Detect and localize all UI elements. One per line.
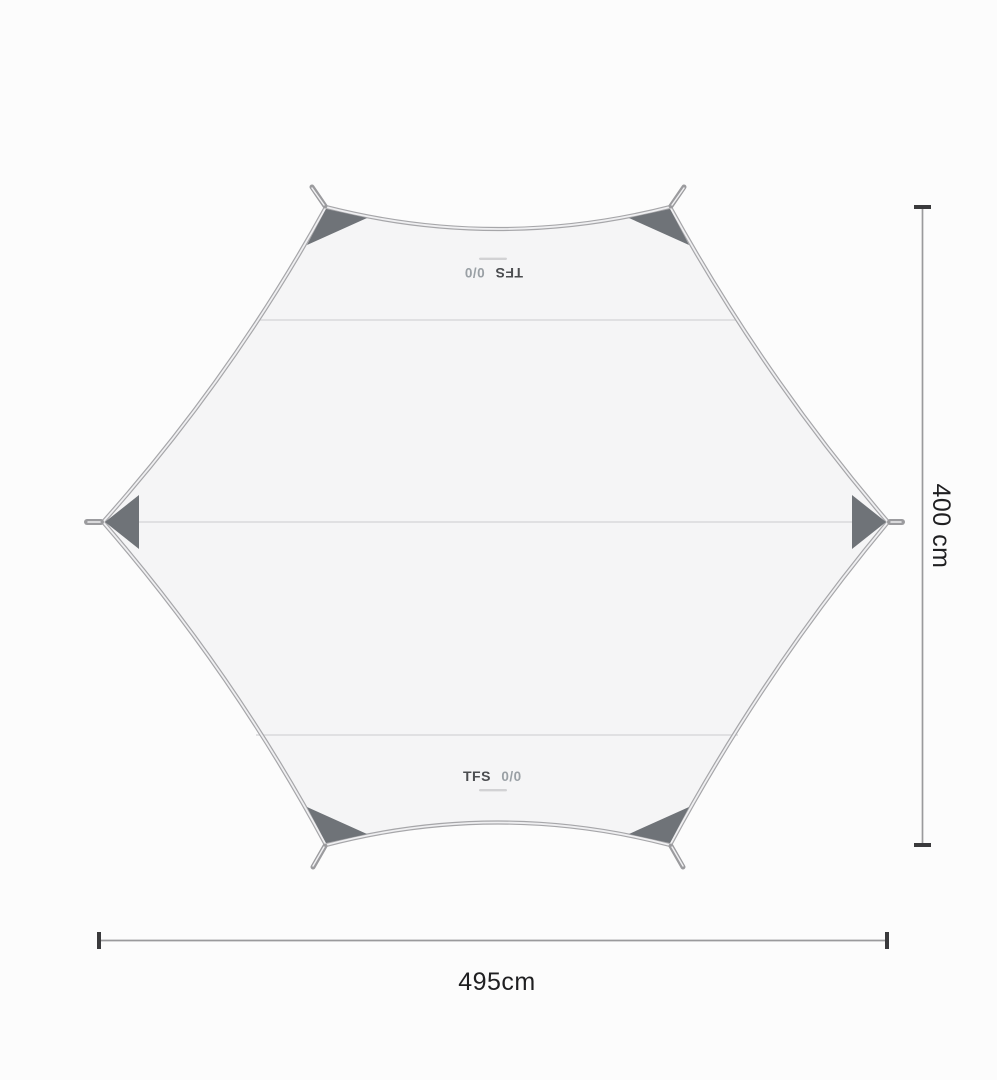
- loop-top-left-highlight: [312, 188, 324, 205]
- dimension-height: 400 cm: [914, 207, 955, 845]
- logo-top-brand: TFS: [495, 265, 523, 281]
- loop-bottom-left-highlight: [313, 847, 324, 866]
- product-diagram: TFS 0/0 TFS 0/0 400 cm 495cm: [0, 0, 997, 1080]
- tarp-fabric: [103, 207, 888, 845]
- logo-top-text: TFS 0/0: [464, 264, 523, 281]
- logo-bottom-text: TFS 0/0: [463, 768, 522, 785]
- dimension-width: 495cm: [99, 932, 887, 996]
- logo-bottom-model: 0/0: [501, 769, 521, 784]
- loop-bottom-right-highlight: [672, 847, 683, 866]
- dimension-height-label: 400 cm: [927, 484, 955, 569]
- logo-bottom-tagline-mark: [479, 789, 507, 791]
- dimension-width-label: 495cm: [458, 968, 536, 996]
- loop-top-right-highlight: [672, 188, 684, 205]
- logo-top-tagline-mark: [479, 258, 507, 260]
- logo-top-model: 0/0: [464, 265, 484, 280]
- logo-bottom-brand: TFS: [463, 768, 491, 784]
- tarp-dimension-diagram: TFS 0/0 TFS 0/0 400 cm 495cm: [0, 0, 997, 1080]
- tarp-canopy: [103, 207, 888, 845]
